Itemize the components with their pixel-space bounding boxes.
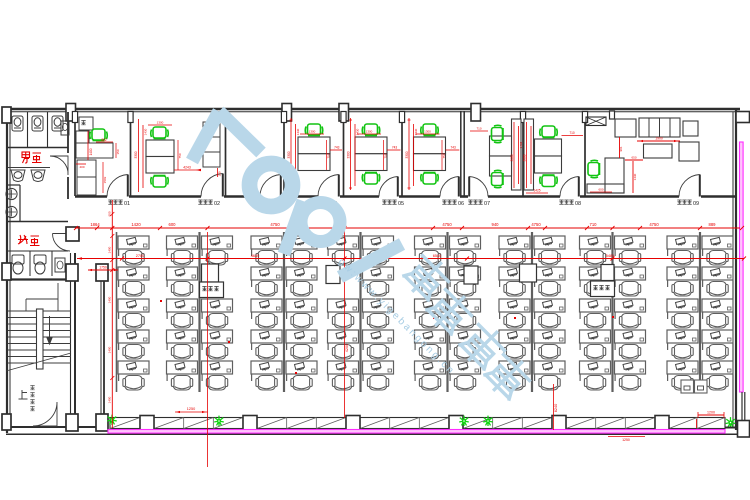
svg-text:1300: 1300 bbox=[366, 130, 373, 134]
svg-text:06: 06 bbox=[458, 201, 464, 207]
svg-text:600: 600 bbox=[108, 211, 112, 216]
svg-text:08: 08 bbox=[575, 201, 581, 207]
svg-text:5480: 5480 bbox=[606, 254, 614, 258]
svg-text:09: 09 bbox=[693, 201, 699, 207]
svg-text:862: 862 bbox=[101, 138, 107, 142]
svg-text:1400: 1400 bbox=[108, 296, 112, 303]
svg-text:4200: 4200 bbox=[345, 344, 349, 352]
svg-text:4750: 4750 bbox=[270, 222, 280, 227]
svg-text:1864: 1864 bbox=[90, 222, 100, 227]
svg-text:750: 750 bbox=[178, 153, 182, 158]
svg-text:1400: 1400 bbox=[108, 246, 112, 253]
svg-text:4750: 4750 bbox=[442, 222, 452, 227]
svg-text:1300: 1300 bbox=[157, 121, 164, 125]
svg-text:01: 01 bbox=[124, 201, 130, 207]
svg-text:889: 889 bbox=[709, 222, 717, 227]
svg-text:1400: 1400 bbox=[108, 396, 112, 403]
svg-text:710: 710 bbox=[569, 131, 575, 135]
svg-text:710: 710 bbox=[476, 127, 481, 131]
svg-text:3300: 3300 bbox=[134, 151, 138, 158]
svg-text:4640: 4640 bbox=[251, 254, 259, 258]
svg-text:2700: 2700 bbox=[136, 254, 144, 258]
svg-text:1503: 1503 bbox=[103, 176, 107, 183]
svg-text:743: 743 bbox=[334, 146, 340, 150]
svg-text:4243: 4243 bbox=[183, 166, 191, 170]
svg-text:750: 750 bbox=[442, 153, 446, 158]
svg-text:1430: 1430 bbox=[519, 141, 523, 148]
svg-text:901: 901 bbox=[619, 146, 623, 151]
svg-text:4750: 4750 bbox=[531, 222, 541, 227]
svg-text:1420: 1420 bbox=[131, 222, 141, 227]
svg-text:1430: 1430 bbox=[296, 128, 300, 135]
svg-text:1250: 1250 bbox=[187, 407, 195, 411]
svg-text:05: 05 bbox=[398, 201, 404, 207]
svg-text:1400: 1400 bbox=[89, 148, 93, 155]
svg-text:710: 710 bbox=[590, 222, 598, 227]
svg-text:600: 600 bbox=[598, 188, 603, 192]
svg-text:07: 07 bbox=[484, 201, 490, 207]
svg-text:1900: 1900 bbox=[655, 137, 663, 141]
svg-text:750: 750 bbox=[327, 153, 331, 158]
svg-text:150: 150 bbox=[116, 149, 120, 154]
svg-text:150: 150 bbox=[218, 171, 222, 176]
svg-text:1430: 1430 bbox=[633, 173, 637, 180]
svg-text:1750: 1750 bbox=[99, 266, 107, 270]
svg-text:02: 02 bbox=[214, 201, 220, 207]
svg-text:940: 940 bbox=[492, 222, 500, 227]
svg-text:3300: 3300 bbox=[287, 151, 291, 158]
svg-text:1430: 1430 bbox=[144, 128, 148, 135]
svg-text:6540: 6540 bbox=[433, 254, 441, 258]
svg-text:743: 743 bbox=[450, 146, 456, 150]
svg-text:4750: 4750 bbox=[649, 222, 659, 227]
svg-text:1250: 1250 bbox=[622, 438, 630, 442]
svg-text:3080: 3080 bbox=[523, 154, 527, 161]
svg-text:400: 400 bbox=[79, 165, 84, 169]
svg-text:1200: 1200 bbox=[707, 411, 715, 415]
svg-text:1425: 1425 bbox=[533, 189, 540, 193]
svg-text:3300: 3300 bbox=[347, 151, 351, 158]
svg-text:750: 750 bbox=[384, 153, 388, 158]
svg-text:6240: 6240 bbox=[554, 404, 558, 412]
svg-text:1400: 1400 bbox=[108, 346, 112, 353]
svg-text:3080: 3080 bbox=[510, 154, 514, 161]
svg-text:3300: 3300 bbox=[405, 151, 409, 158]
svg-text:600: 600 bbox=[169, 222, 177, 227]
svg-text:743: 743 bbox=[392, 146, 398, 150]
svg-text:1300: 1300 bbox=[424, 130, 431, 134]
svg-text:1300: 1300 bbox=[309, 130, 316, 134]
svg-text:650: 650 bbox=[631, 156, 636, 160]
